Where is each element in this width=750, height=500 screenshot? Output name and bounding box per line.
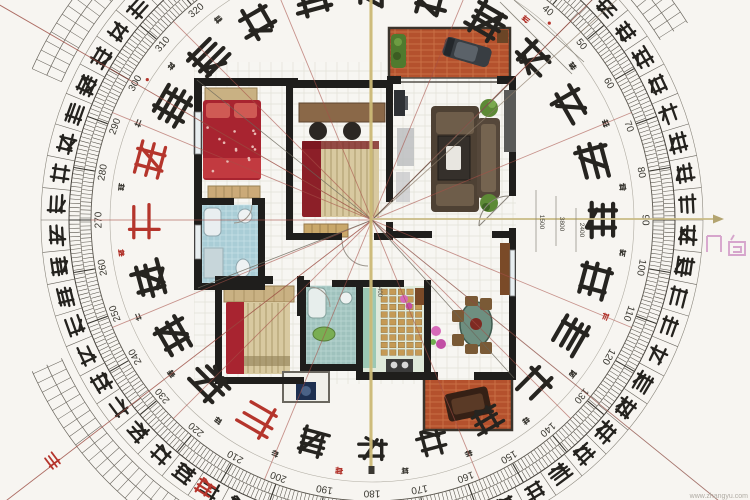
svg-text:3800: 3800 <box>558 217 565 232</box>
svg-text:www.zhangyu.com: www.zhangyu.com <box>689 493 749 500</box>
svg-text:2400: 2400 <box>578 223 585 238</box>
svg-text:90: 90 <box>640 214 651 226</box>
svg-text:1500: 1500 <box>538 215 545 230</box>
svg-text:400: 400 <box>376 287 382 298</box>
svg-text:180: 180 <box>363 488 380 499</box>
